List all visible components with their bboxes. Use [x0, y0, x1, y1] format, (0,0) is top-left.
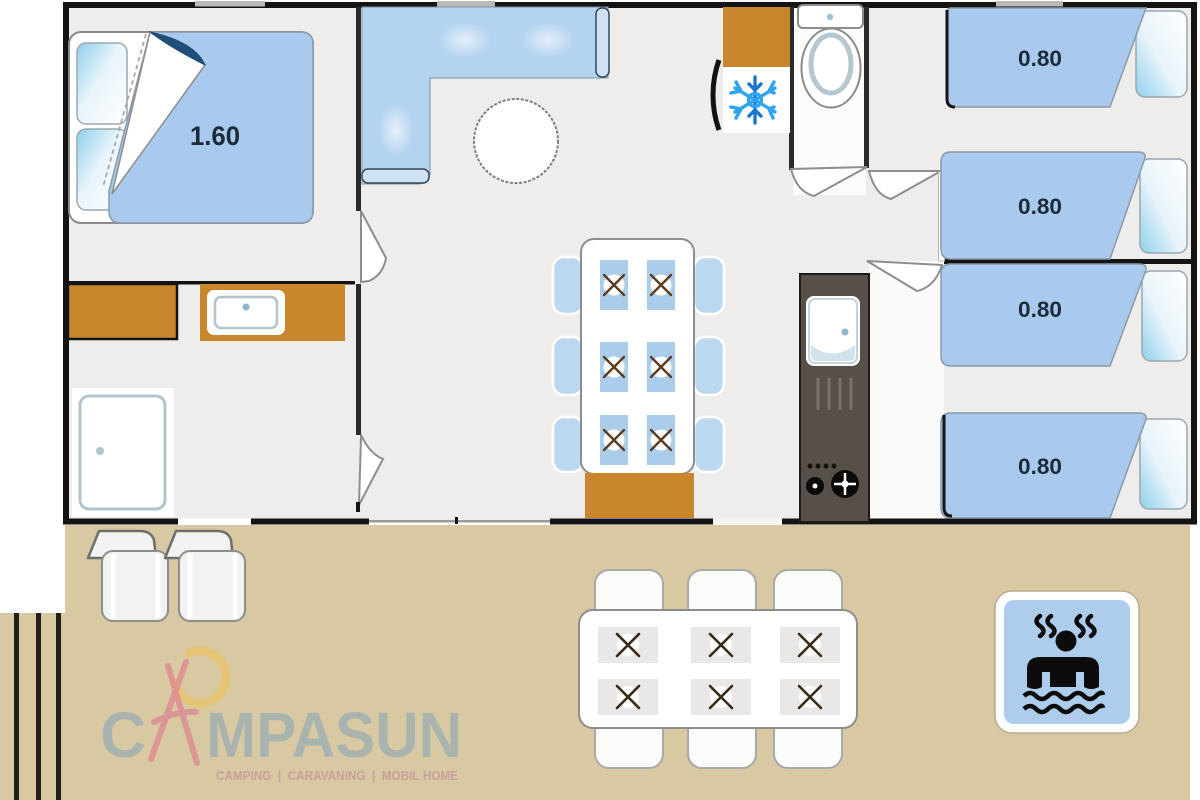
svg-text:0.80: 0.80: [1018, 454, 1062, 479]
svg-text:C: C: [100, 699, 146, 771]
svg-text:MPASUN: MPASUN: [206, 699, 462, 771]
svg-text:CAMPING | CARAVANING | MOB: CAMPING | CARAVANING | MOBIL HOME: [216, 768, 458, 783]
svg-text:0.80: 0.80: [1018, 46, 1062, 71]
svg-text:1.60: 1.60: [190, 121, 240, 151]
svg-text:0.80: 0.80: [1018, 297, 1062, 322]
svg-text:0.80: 0.80: [1018, 194, 1062, 219]
